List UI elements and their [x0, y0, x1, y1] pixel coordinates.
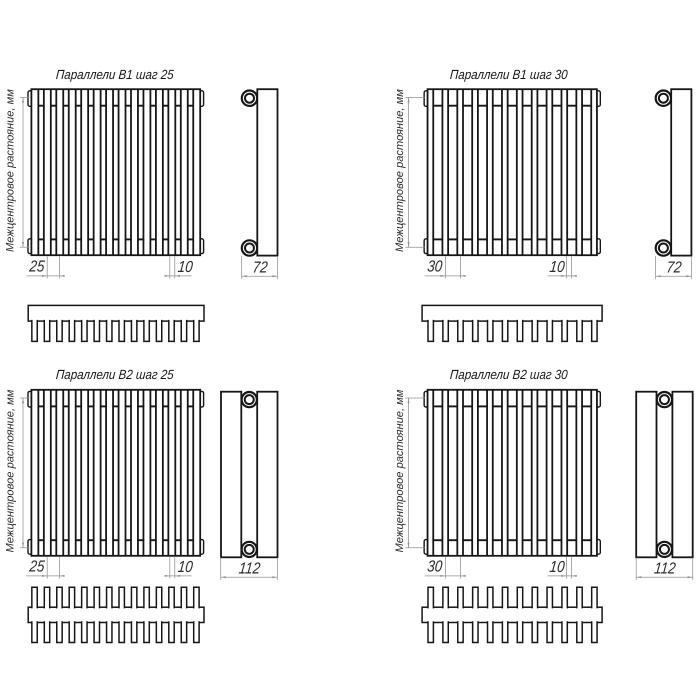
svg-text:Параллели В2 шаг 30: Параллели В2 шаг 30 [449, 368, 568, 383]
svg-text:Параллели В1 шаг 30: Параллели В1 шаг 30 [449, 68, 568, 83]
svg-text:10: 10 [549, 259, 566, 276]
svg-text:Параллели В2 шаг 25: Параллели В2 шаг 25 [55, 368, 174, 383]
svg-text:25: 25 [28, 259, 46, 276]
svg-text:Параллели В1 шаг 25: Параллели В1 шаг 25 [55, 68, 174, 83]
svg-text:Межцентровое растояние, мм: Межцентровое растояние, мм [5, 389, 17, 552]
svg-text:10: 10 [549, 559, 566, 576]
svg-text:Межцентровое растояние, мм: Межцентровое растояние, мм [5, 89, 17, 252]
svg-text:10: 10 [177, 259, 194, 276]
svg-text:112: 112 [238, 561, 262, 578]
svg-text:30: 30 [426, 559, 443, 576]
svg-text:Межцентровое растояние, мм: Межцентровое растояние, мм [394, 389, 406, 552]
svg-text:72: 72 [666, 260, 683, 277]
svg-text:30: 30 [426, 259, 443, 276]
svg-text:10: 10 [177, 559, 194, 576]
svg-text:72: 72 [252, 260, 269, 277]
svg-text:25: 25 [28, 559, 46, 576]
svg-text:Межцентровое растояние, мм: Межцентровое растояние, мм [394, 89, 406, 252]
svg-text:112: 112 [653, 561, 677, 578]
